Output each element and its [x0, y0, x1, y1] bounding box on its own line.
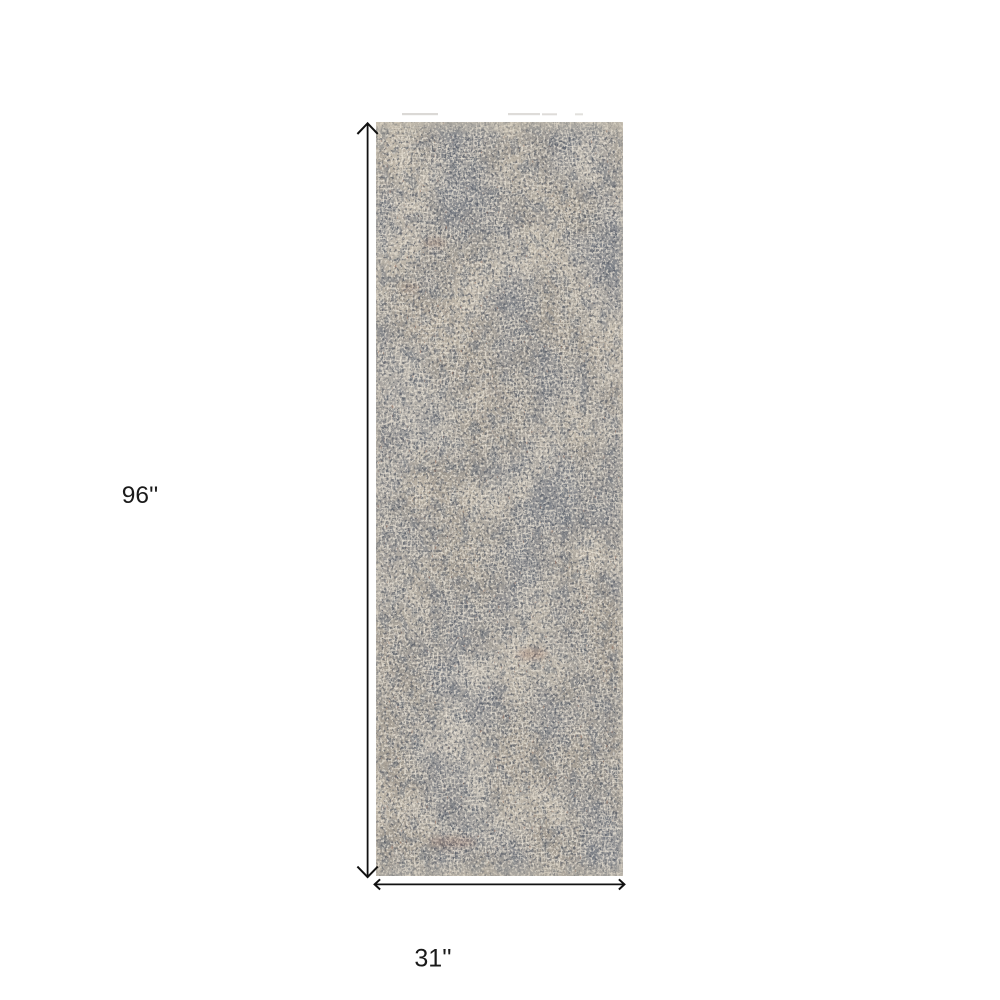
svg-text:96'': 96'' — [122, 482, 159, 509]
svg-text:31'': 31'' — [414, 945, 451, 973]
